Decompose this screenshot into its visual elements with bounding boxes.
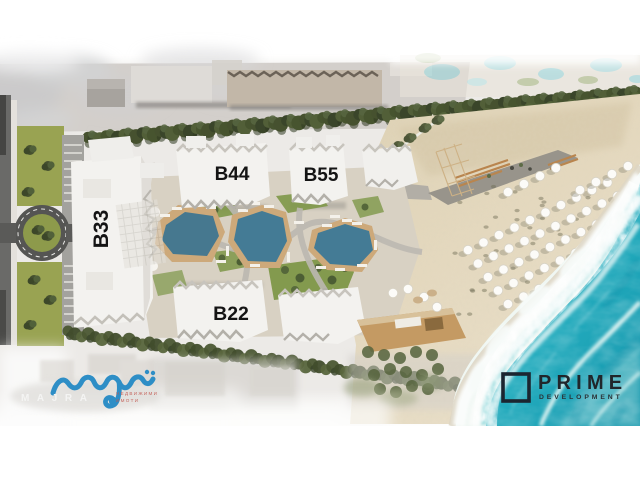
svg-text:DEVELOPMENT: DEVELOPMENT — [539, 394, 623, 401]
svg-text:НЕДВИЖИМИ: НЕДВИЖИМИ — [116, 391, 158, 396]
svg-text:PRIME: PRIME — [538, 372, 627, 394]
svg-text:ИМОТИ: ИМОТИ — [116, 398, 139, 403]
svg-text:B22: B22 — [213, 303, 249, 325]
svg-text:B33: B33 — [90, 210, 113, 249]
svg-text:B55: B55 — [304, 165, 339, 186]
svg-text:B44: B44 — [215, 164, 250, 185]
svg-text:MAJRA: MAJRA — [21, 393, 95, 404]
